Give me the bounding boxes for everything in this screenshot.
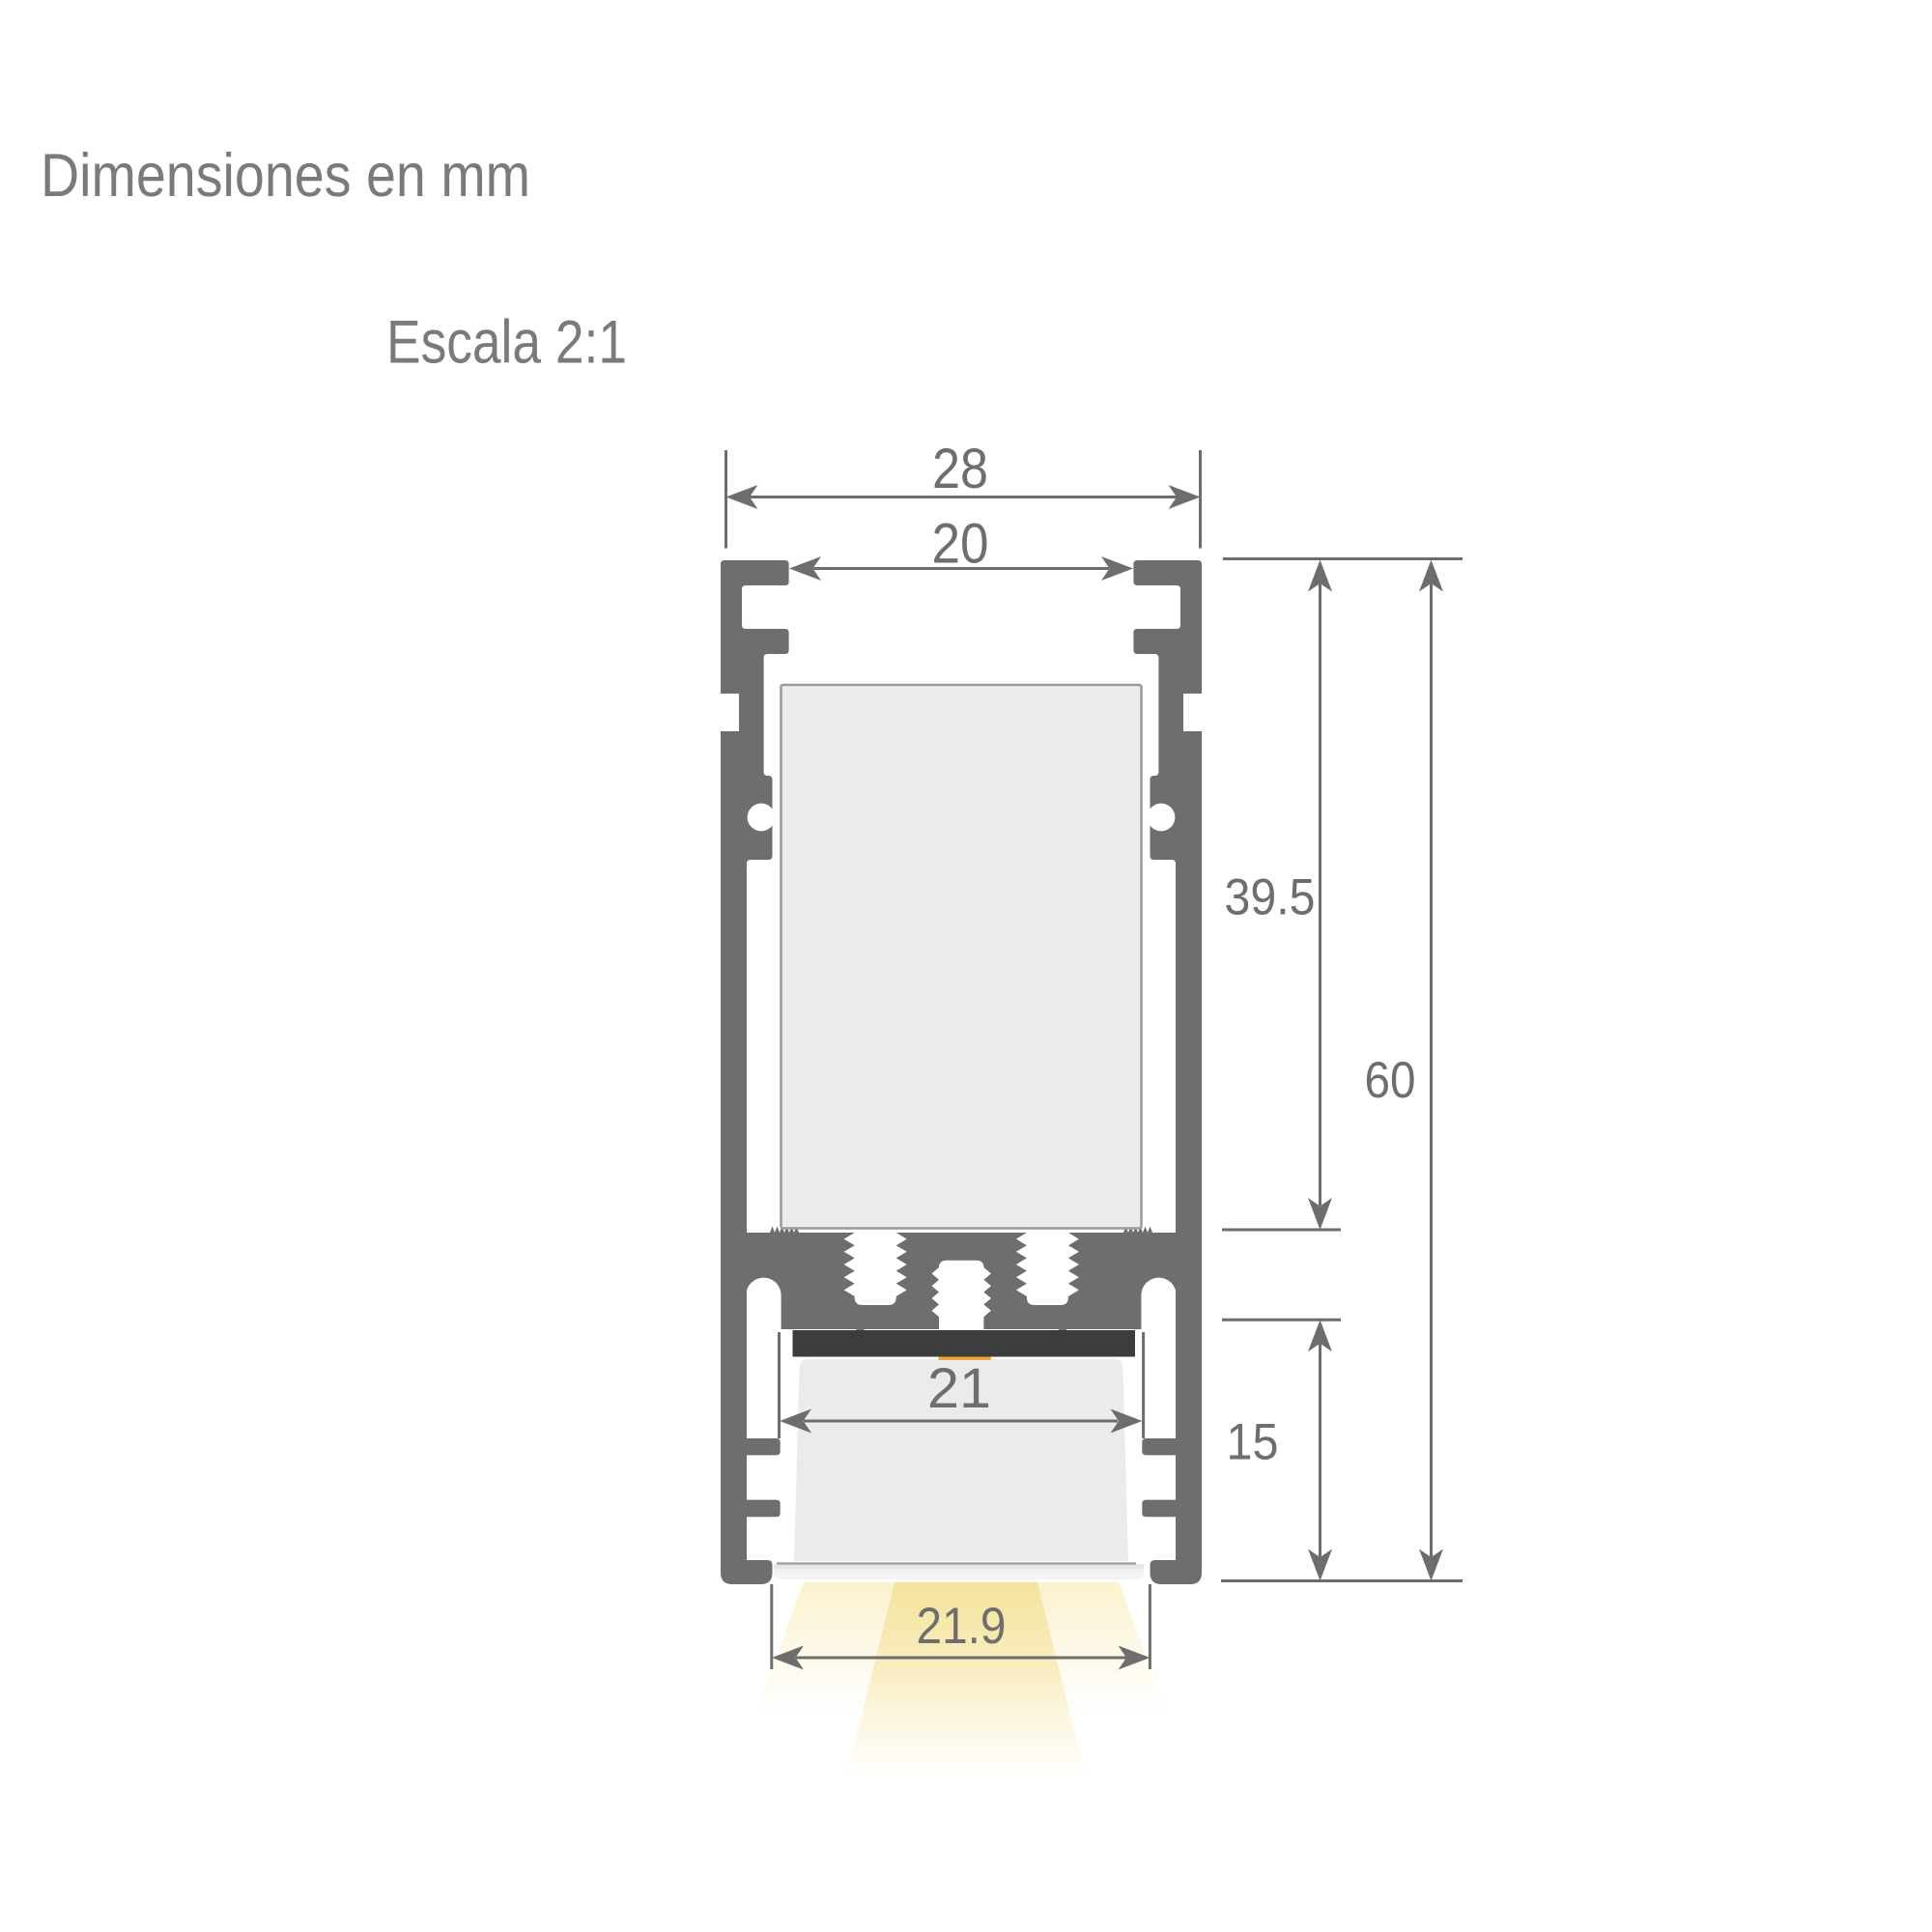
svg-text:20: 20: [932, 513, 989, 576]
svg-text:39.5: 39.5: [1225, 869, 1316, 926]
svg-text:21: 21: [927, 1357, 991, 1420]
svg-text:60: 60: [1365, 1052, 1416, 1109]
svg-text:28: 28: [932, 438, 988, 500]
svg-text:Dimensiones en mm: Dimensiones en mm: [41, 142, 530, 210]
svg-text:Escala 2:1: Escala 2:1: [386, 309, 627, 377]
svg-text:15: 15: [1227, 1414, 1279, 1471]
svg-text:21.9: 21.9: [917, 1598, 1007, 1655]
